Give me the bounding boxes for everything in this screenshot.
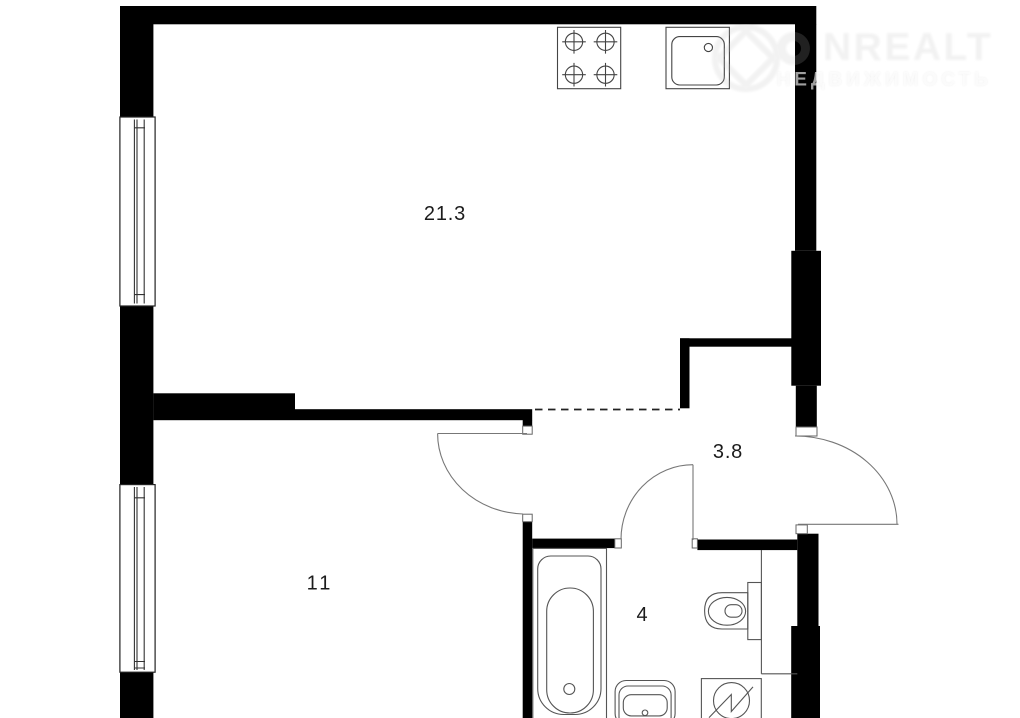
svg-text:НЕДВИЖИМОСТЬ: НЕДВИЖИМОСТЬ [777, 70, 992, 91]
svg-text:NREALT: NREALT [823, 26, 993, 69]
svg-text:4: 4 [636, 604, 647, 626]
svg-text:21.3: 21.3 [424, 203, 466, 225]
svg-text:3.8: 3.8 [713, 441, 743, 463]
svg-text:11: 11 [307, 573, 334, 595]
